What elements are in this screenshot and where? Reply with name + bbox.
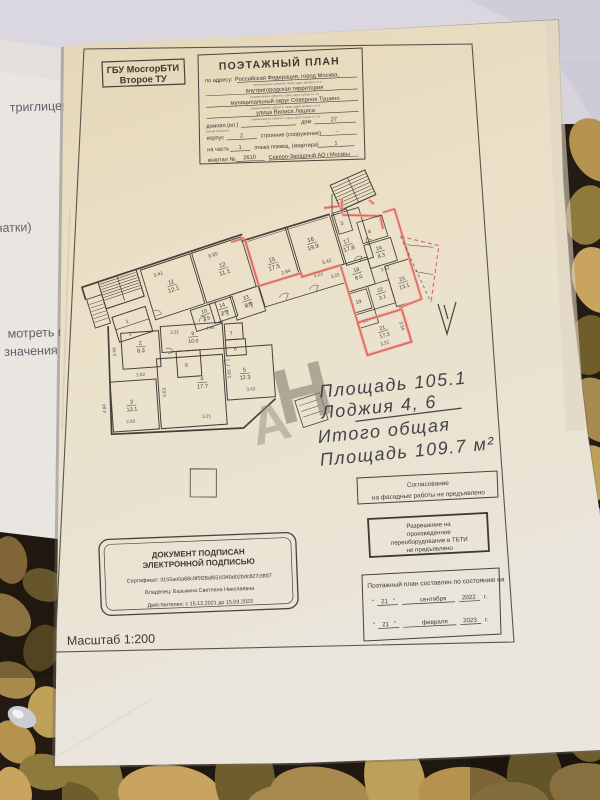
svg-text:3.21: 3.21 [202,413,212,419]
svg-text:5: 5 [243,367,247,373]
svg-text:3.21: 3.21 [170,329,180,335]
svg-text:4: 4 [200,376,204,382]
svg-text:“: “ [373,622,375,629]
svg-text:2.82: 2.82 [136,372,146,378]
svg-text:1: 1 [334,140,337,146]
svg-text:“: “ [372,599,374,606]
svg-text:2610: 2610 [243,155,256,162]
svg-text:дом: дом [301,119,312,125]
svg-text:10.0: 10.0 [188,338,199,345]
svg-text:21: 21 [382,621,390,628]
svg-text:1: 1 [238,145,241,151]
svg-text:чатки): чатки) [0,220,32,235]
svg-text:13.1: 13.1 [126,407,137,414]
svg-text:21: 21 [381,598,389,605]
svg-text:2.83: 2.83 [226,369,232,379]
svg-text:2023: 2023 [463,617,478,625]
svg-text:8.3: 8.3 [137,348,145,355]
svg-text:корпус: корпус [207,135,225,142]
svg-text:5.53: 5.53 [162,387,168,397]
svg-text:”: ” [393,598,395,605]
svg-text:2.94: 2.94 [112,347,118,357]
svg-text:17.7: 17.7 [197,384,208,391]
svg-text:3.42: 3.42 [246,386,256,392]
svg-text:по адресу:: по адресу: [205,77,233,84]
svg-text:2: 2 [139,341,143,347]
svg-text:12.3: 12.3 [239,375,250,382]
svg-text:г.: г. [485,616,489,623]
svg-text:г.: г. [484,593,488,600]
svg-text:2022: 2022 [462,594,477,602]
svg-text:2.83: 2.83 [126,418,136,424]
svg-text:квартал №: квартал № [208,157,236,164]
svg-text:2: 2 [240,133,243,139]
svg-text:27: 27 [331,117,338,123]
svg-text:9: 9 [191,331,194,337]
svg-text:Масштаб 1:200: Масштаб 1:200 [67,632,156,648]
svg-text:4.84: 4.84 [102,404,108,414]
svg-text:Второе ТУ: Второе ТУ [119,74,167,86]
svg-text:3: 3 [130,399,134,405]
svg-text:”: ” [394,621,396,628]
svg-text:на часть: на часть [207,146,229,153]
